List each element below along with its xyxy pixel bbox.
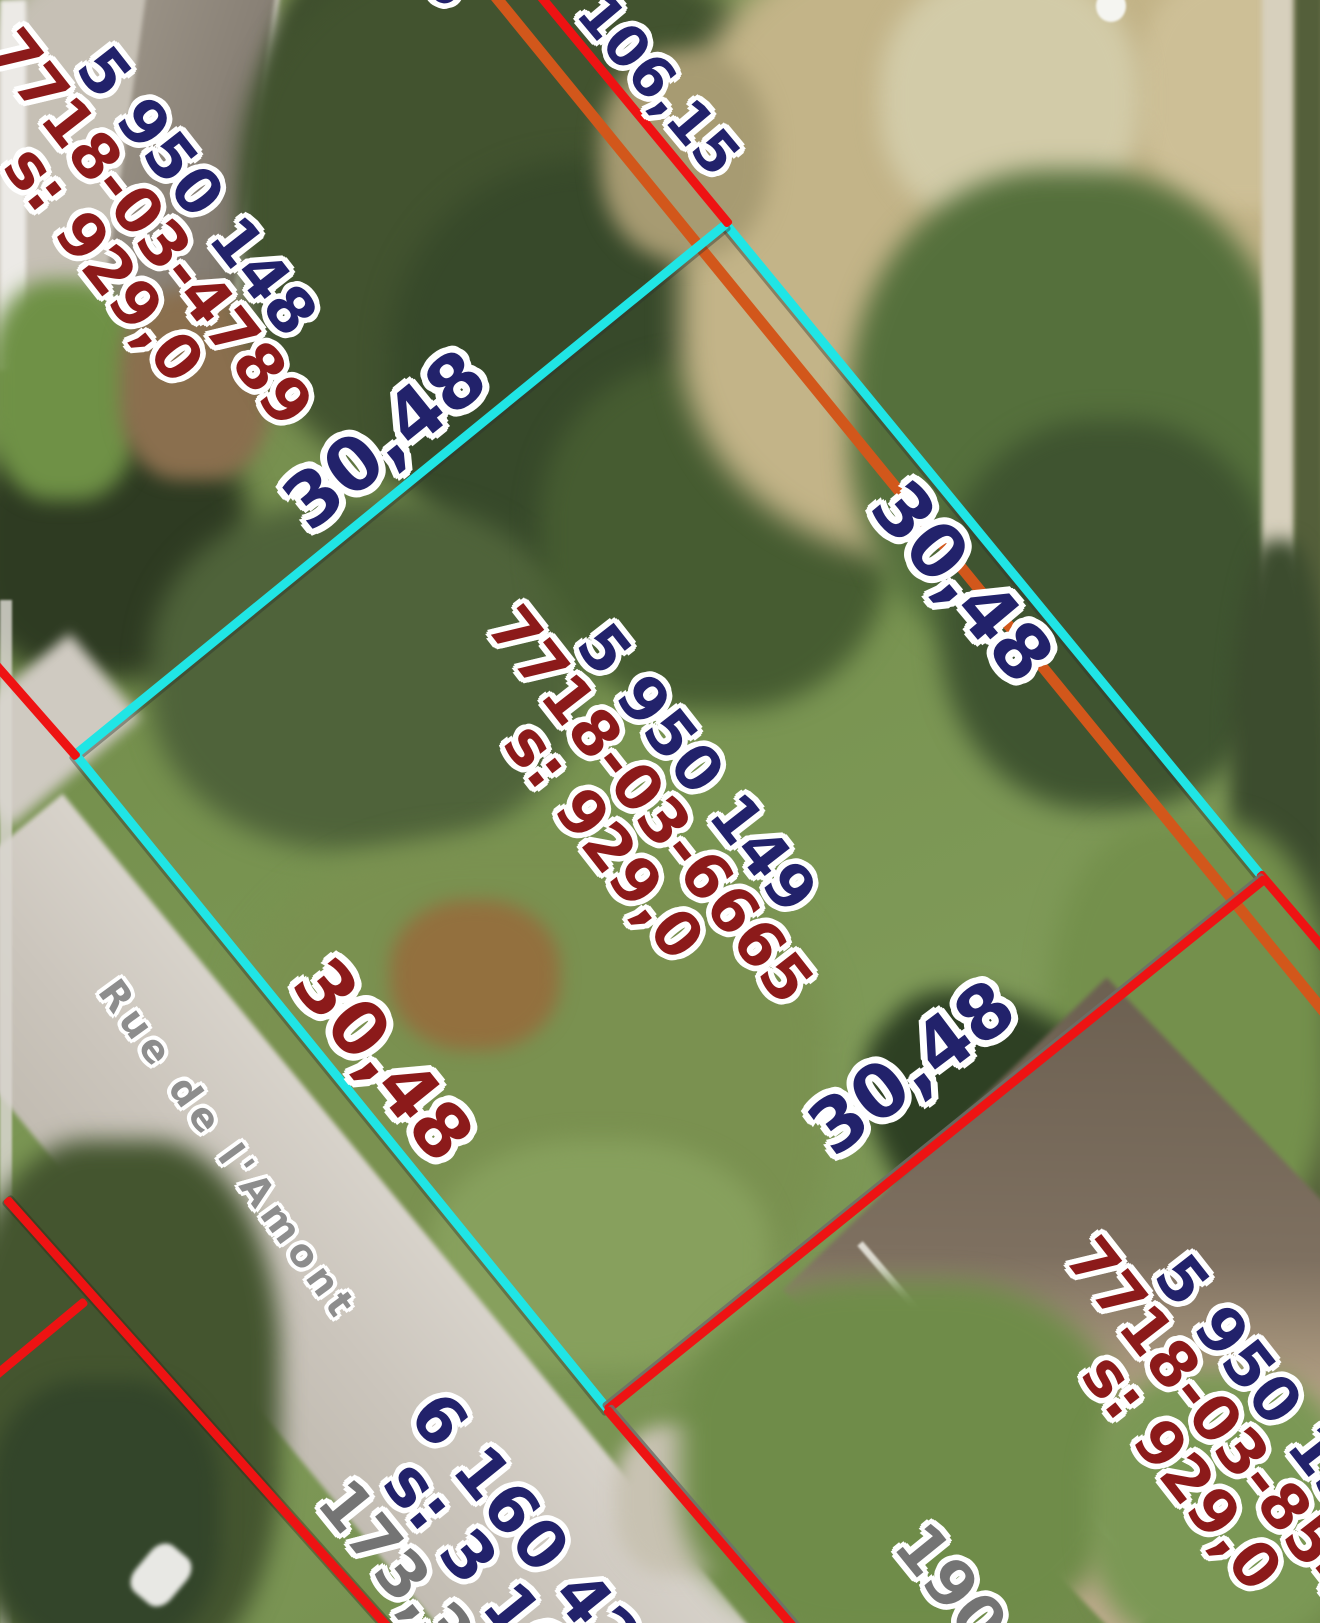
map-canvas[interactable]: 5 950 148 7718-03-4789 s: 929,0 5 950 14… (0, 0, 1320, 1623)
aerial-shrubs-bottomleft-dark (0, 1380, 220, 1623)
aerial-brown-patch-149 (390, 900, 560, 1050)
